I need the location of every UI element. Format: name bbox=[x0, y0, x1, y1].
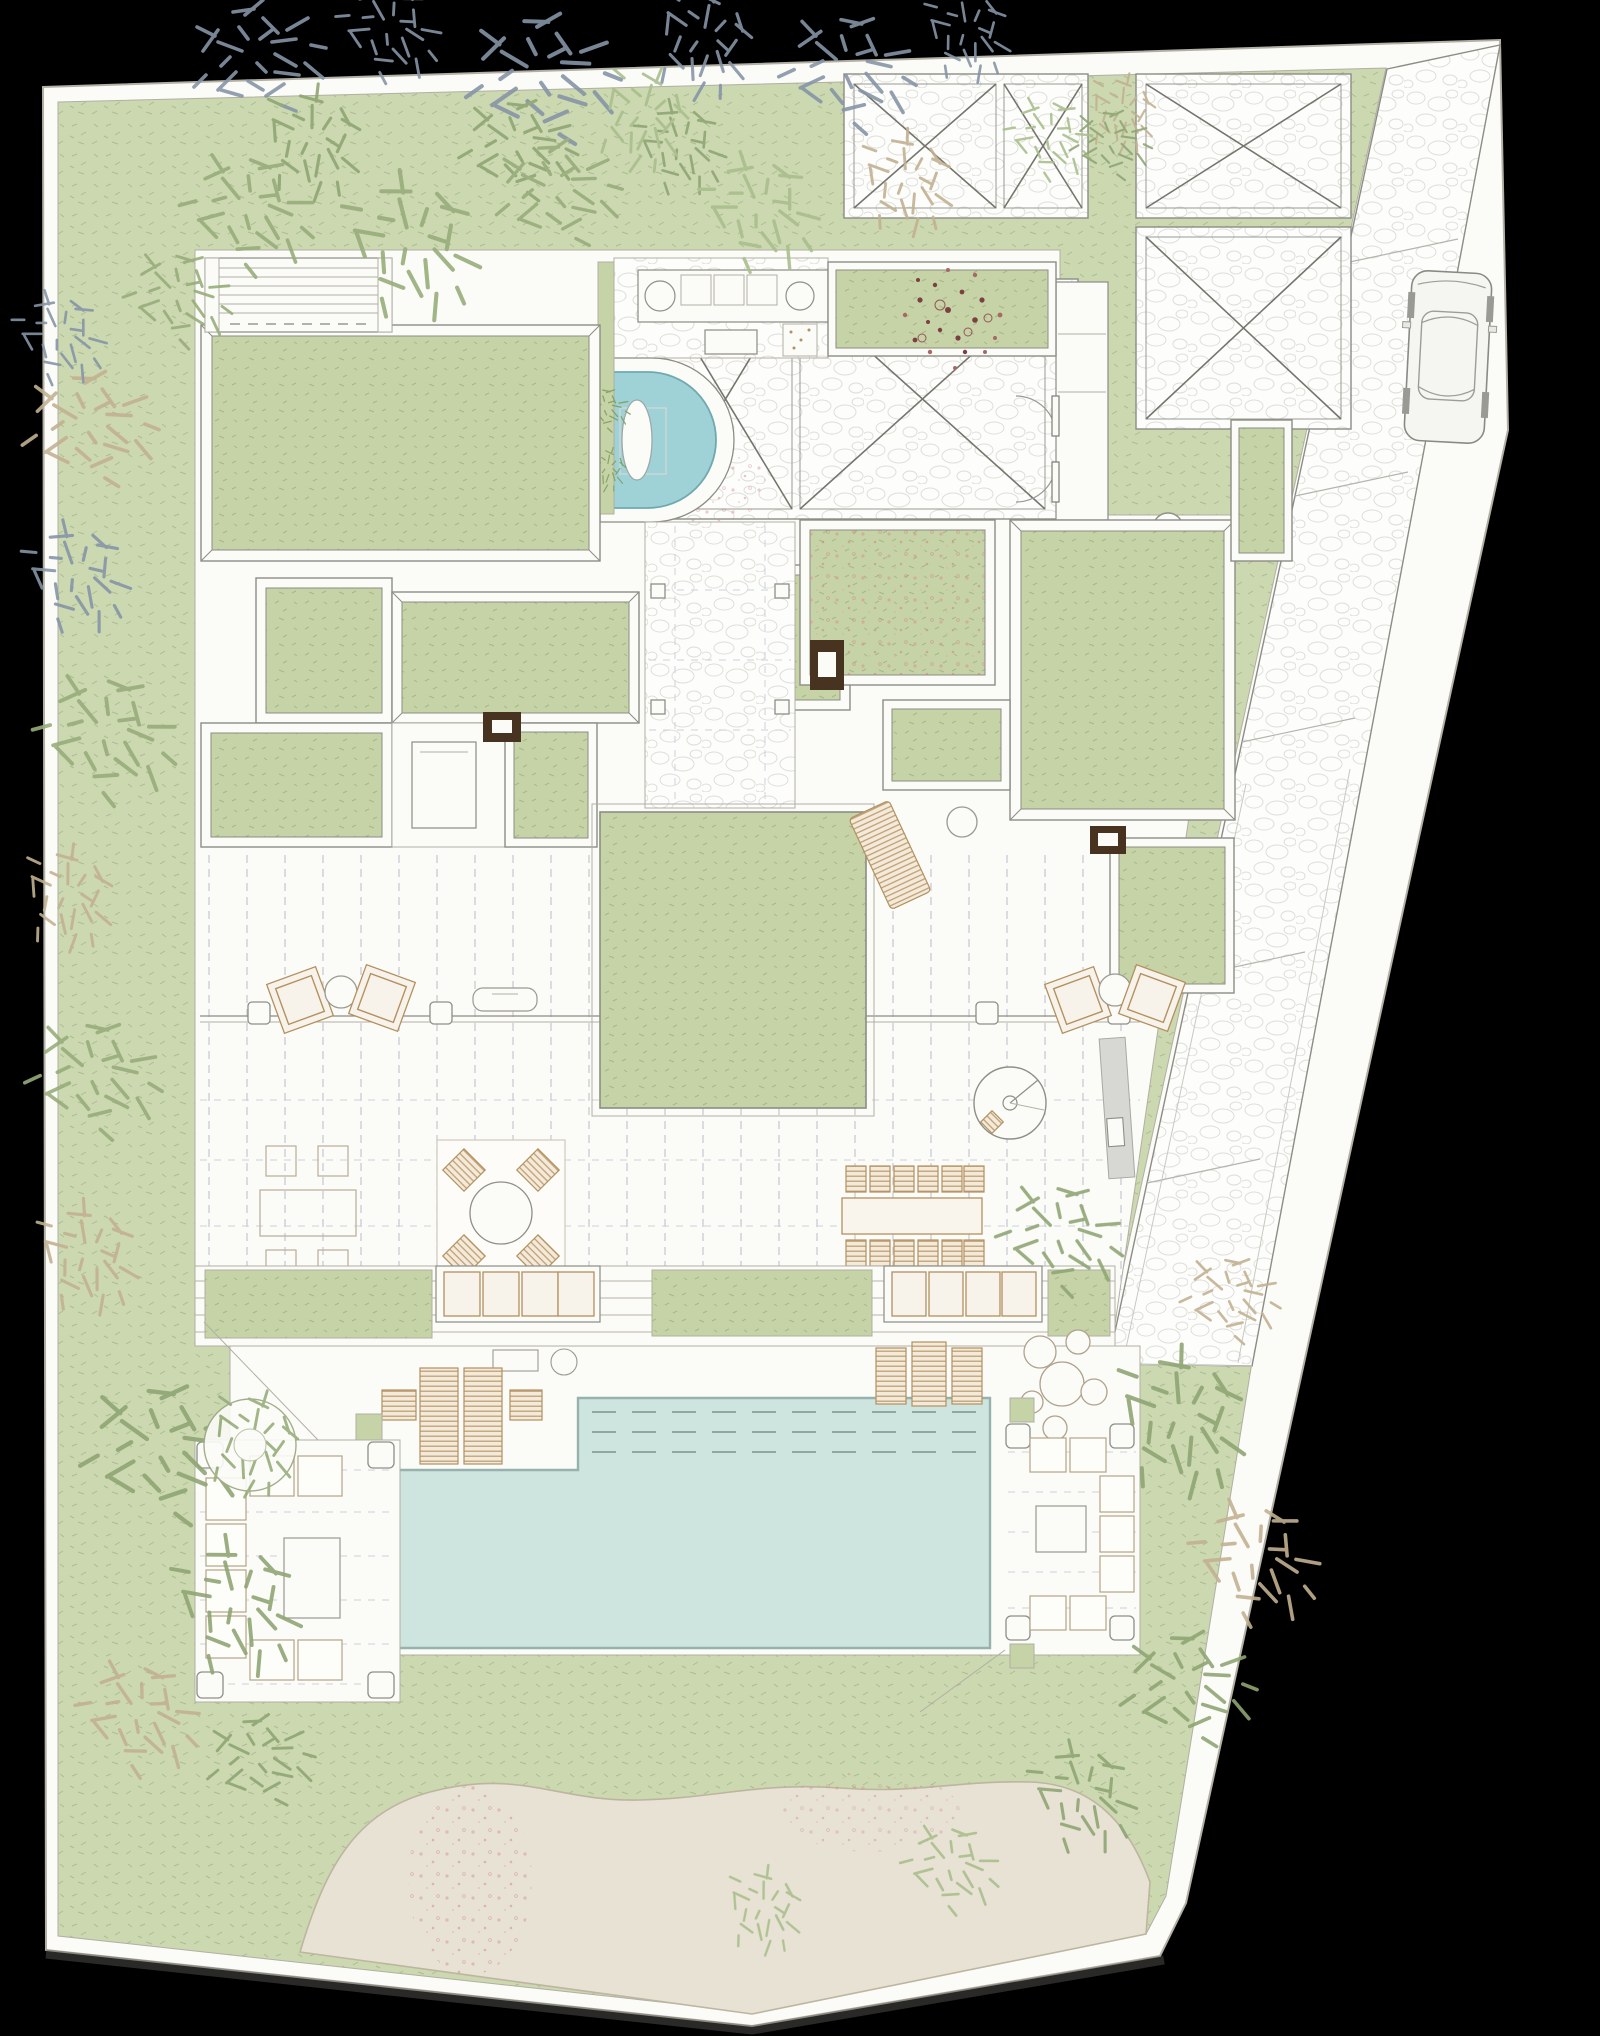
site-plan-document bbox=[0, 0, 1600, 2036]
car-wheel bbox=[1486, 296, 1494, 322]
parked-car bbox=[1397, 270, 1500, 445]
top-court bbox=[844, 74, 1088, 218]
green-roof bbox=[256, 578, 392, 723]
sun-lounger bbox=[464, 1368, 502, 1464]
planter-trough bbox=[436, 1266, 600, 1322]
side-table bbox=[510, 1390, 542, 1420]
sun-lounger bbox=[912, 1342, 946, 1406]
step-lawn-strip bbox=[652, 1270, 872, 1336]
chimney-skylight bbox=[483, 712, 521, 742]
central-courtyard-lawn bbox=[592, 804, 874, 1116]
kitchen-module bbox=[747, 275, 777, 305]
plan-canvas bbox=[0, 0, 1600, 2036]
sun-lounger bbox=[876, 1348, 906, 1404]
dining-table bbox=[842, 1198, 982, 1234]
green-roof bbox=[1231, 420, 1292, 561]
sun-lounger-trio bbox=[876, 1342, 982, 1406]
green-roof bbox=[1110, 838, 1234, 993]
green-roof bbox=[201, 723, 392, 847]
car-wheel bbox=[1481, 392, 1489, 418]
green-roof bbox=[1010, 520, 1235, 820]
outdoor-kitchen bbox=[614, 258, 828, 358]
planter bbox=[1010, 1398, 1034, 1422]
coffee-table bbox=[1036, 1506, 1086, 1552]
kitchen-island bbox=[705, 330, 757, 354]
green-roof bbox=[201, 325, 600, 561]
gate-door bbox=[1107, 1118, 1125, 1147]
green-roof bbox=[392, 592, 639, 723]
sand-flower-speckles bbox=[780, 1772, 960, 1852]
planter bbox=[356, 1414, 382, 1440]
kitchen-planter-roof bbox=[828, 262, 1056, 370]
kitchen-module bbox=[681, 275, 711, 305]
pergola-walkway bbox=[645, 522, 795, 808]
green-roof bbox=[883, 700, 1010, 790]
car-wheel bbox=[1402, 388, 1410, 414]
car-mirror bbox=[1402, 322, 1410, 328]
spiral-stair bbox=[974, 1067, 1046, 1139]
sun-lounger bbox=[952, 1348, 982, 1404]
kitchen-sink bbox=[645, 281, 675, 311]
kitchen-grill bbox=[783, 324, 817, 356]
step-lawn-strip bbox=[205, 1270, 432, 1338]
pool-round-table bbox=[551, 1349, 577, 1375]
round-dining-set bbox=[437, 1140, 565, 1285]
side-table bbox=[947, 807, 977, 837]
garden-steps bbox=[195, 1266, 1115, 1346]
planter-trough bbox=[884, 1266, 1042, 1322]
bench bbox=[473, 988, 537, 1011]
top-court-right bbox=[1136, 74, 1351, 218]
chimney-skylight bbox=[810, 640, 844, 690]
sand-flower-speckles bbox=[408, 1785, 532, 1975]
kitchen-module bbox=[714, 275, 744, 305]
kitchen-burner bbox=[786, 282, 814, 310]
car-mirror bbox=[1488, 326, 1496, 332]
coffee-table bbox=[284, 1538, 340, 1618]
step-lawn-strip bbox=[1048, 1270, 1110, 1336]
garage-court bbox=[1136, 227, 1351, 429]
slatted-pergola bbox=[205, 258, 392, 332]
car-wheel bbox=[1407, 292, 1415, 318]
chimney-skylight bbox=[1090, 826, 1126, 854]
round-table bbox=[470, 1182, 532, 1244]
planter bbox=[1010, 1644, 1034, 1668]
sun-lounger bbox=[420, 1368, 458, 1464]
side-table bbox=[382, 1390, 416, 1420]
